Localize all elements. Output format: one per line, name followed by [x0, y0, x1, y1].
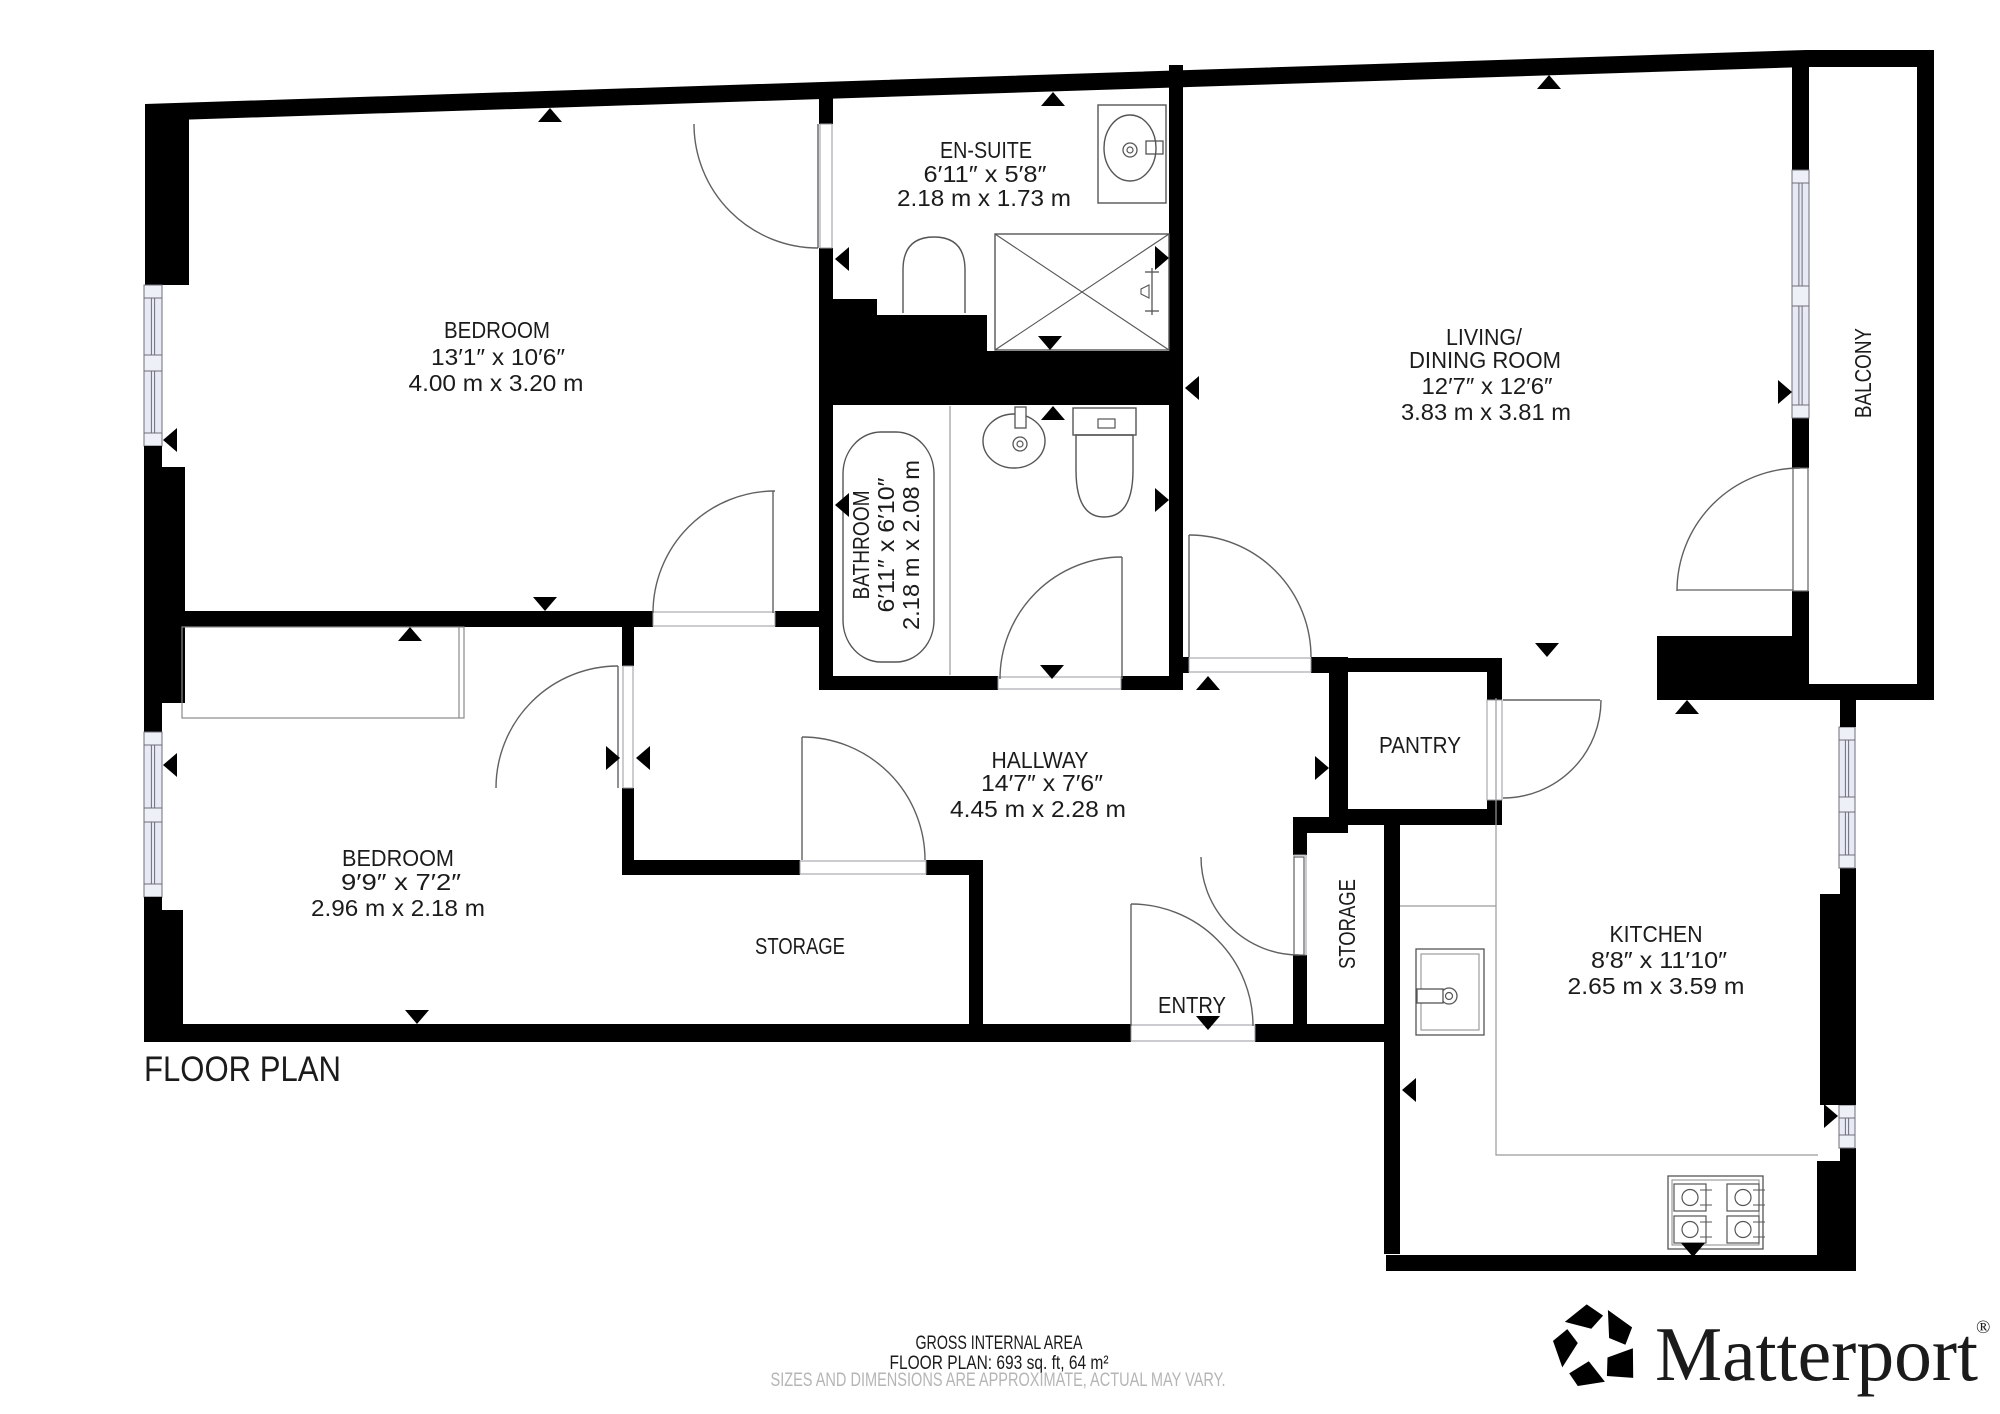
svg-text:2.18 m x 1.73 m: 2.18 m x 1.73 m — [897, 185, 1071, 211]
svg-text:Matterport: Matterport — [1655, 1311, 1978, 1397]
svg-text:8′8″ x 11′10″: 8′8″ x 11′10″ — [1591, 947, 1727, 973]
svg-text:6′11″ x 5′8″: 6′11″ x 5′8″ — [924, 161, 1047, 187]
svg-text:STORAGE: STORAGE — [1334, 879, 1360, 969]
svg-text:14′7″ x 7′6″: 14′7″ x 7′6″ — [981, 770, 1103, 796]
svg-text:2.65 m x 3.59 m: 2.65 m x 3.59 m — [1568, 973, 1745, 999]
svg-text:12′7″ x 12′6″: 12′7″ x 12′6″ — [1422, 373, 1553, 399]
svg-text:DINING ROOM: DINING ROOM — [1409, 347, 1561, 373]
svg-text:EN-SUITE: EN-SUITE — [940, 137, 1032, 163]
svg-text:BALCONY: BALCONY — [1850, 328, 1876, 418]
svg-text:®: ® — [1976, 1317, 1990, 1338]
svg-text:2.96 m x 2.18 m: 2.96 m x 2.18 m — [311, 895, 485, 921]
svg-text:13′1″ x 10′6″: 13′1″ x 10′6″ — [431, 344, 565, 370]
svg-text:BATHROOM: BATHROOM — [848, 491, 874, 600]
svg-text:2.18 m x 2.08 m: 2.18 m x 2.08 m — [898, 460, 924, 630]
svg-text:GROSS INTERNAL AREA: GROSS INTERNAL AREA — [916, 1333, 1083, 1354]
svg-text:STORAGE: STORAGE — [755, 933, 845, 959]
svg-text:4.00 m x 3.20 m: 4.00 m x 3.20 m — [409, 370, 584, 396]
svg-text:9′9″ x 7′2″: 9′9″ x 7′2″ — [341, 869, 461, 895]
svg-text:PANTRY: PANTRY — [1379, 732, 1461, 758]
svg-text:BEDROOM: BEDROOM — [444, 317, 550, 343]
svg-text:BEDROOM: BEDROOM — [342, 845, 454, 871]
svg-text:6′11″ x 6′10″: 6′11″ x 6′10″ — [873, 478, 899, 613]
svg-text:KITCHEN: KITCHEN — [1610, 921, 1703, 947]
svg-text:FLOOR PLAN: FLOOR PLAN — [144, 1050, 341, 1089]
svg-text:SIZES AND DIMENSIONS ARE APPRO: SIZES AND DIMENSIONS ARE APPROXIMATE, AC… — [771, 1370, 1226, 1391]
svg-text:ENTRY: ENTRY — [1158, 992, 1226, 1018]
svg-text:4.45 m x 2.28 m: 4.45 m x 2.28 m — [950, 796, 1126, 822]
svg-text:3.83 m x 3.81 m: 3.83 m x 3.81 m — [1401, 399, 1571, 425]
